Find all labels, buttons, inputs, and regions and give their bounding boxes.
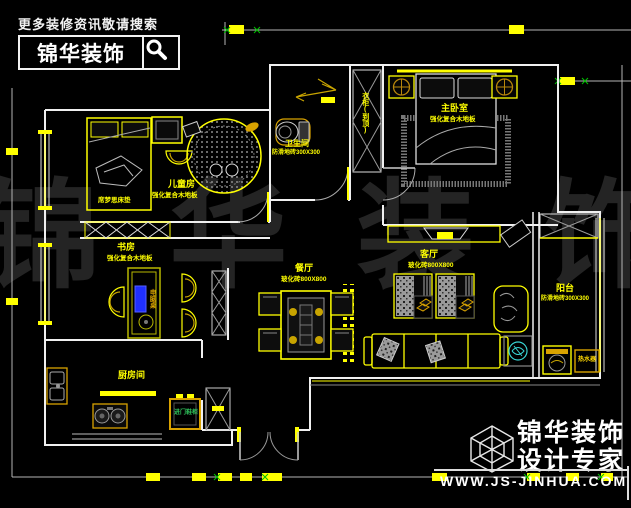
label-desk: 电脑桌 (148, 289, 155, 329)
entry-x-cabinet (206, 388, 230, 430)
search-box (142, 35, 180, 70)
label-shoe-cabinet: 进门鞋柜 (174, 410, 198, 417)
label-dining: 餐厅 (295, 264, 313, 274)
label-bathroom-floor: 防滑地砖300X300 (272, 150, 320, 157)
label-study: 书房 (117, 243, 135, 253)
living-sofa (364, 334, 508, 368)
label-children-floor: 强化复合木地板 (152, 192, 198, 199)
footer-brand-name: 锦华装饰 (517, 420, 625, 448)
entry-door (237, 427, 299, 460)
label-children-bed: 席梦思床垫 (98, 197, 131, 204)
label-living: 客厅 (420, 250, 438, 260)
kitchen-stove (93, 404, 127, 428)
label-balcony-floor: 防滑地砖300X300 (541, 296, 589, 303)
study-bookshelf (212, 271, 226, 335)
label-water-heater: 热水器 (578, 357, 596, 364)
label-study-floor: 强化复合木地板 (107, 255, 153, 262)
bathroom-door (315, 167, 348, 200)
washing-machine (543, 346, 571, 374)
study-chairs-right (182, 274, 196, 337)
dining-table (281, 291, 331, 359)
study-desk (128, 268, 160, 338)
label-living-floor: 玻化砖800X800 (408, 262, 454, 269)
window-left-children (38, 130, 52, 210)
window-kitchen-bottom (72, 434, 162, 439)
label-bathroom: 卫生间 (285, 140, 309, 149)
children-desk (152, 117, 182, 143)
window-left-study (38, 243, 52, 325)
floorplan-canvas: 锦华装饰 (0, 0, 631, 508)
living-loveseat-1 (394, 274, 432, 318)
label-master-floor: 强化复合木地板 (430, 116, 476, 123)
kitchen-sink (47, 368, 67, 404)
children-door (238, 192, 268, 222)
living-armchair (494, 286, 528, 332)
label-children-room: 儿童房 (168, 180, 195, 190)
label-master-room: 主卧室 (441, 104, 468, 114)
master-nightstand-left (389, 76, 414, 98)
master-nightstand-right (492, 76, 517, 98)
kitchen-label-bar (100, 391, 156, 396)
study-chair-left (109, 287, 124, 317)
label-kitchen: 厨房间 (118, 371, 145, 381)
brand-name-box: 锦华装饰 (18, 35, 144, 70)
living-loveseat-2 (436, 274, 474, 318)
label-dining-floor: 玻化砖800X800 (281, 276, 327, 283)
window-balcony-right (596, 218, 604, 372)
search-icon (144, 37, 168, 61)
tv-cabinet (388, 226, 500, 242)
footer-url: WWW.JS-JINHUA.COM (440, 473, 627, 489)
children-wardrobe-strip (85, 222, 170, 238)
label-balcony: 阳台 (556, 284, 574, 294)
label-wardrobe: 衣柜(到顶) (361, 92, 369, 168)
bathroom-highlight-label (321, 97, 335, 103)
promo-tagline: 更多装修资讯敬请搜索 (18, 14, 158, 33)
